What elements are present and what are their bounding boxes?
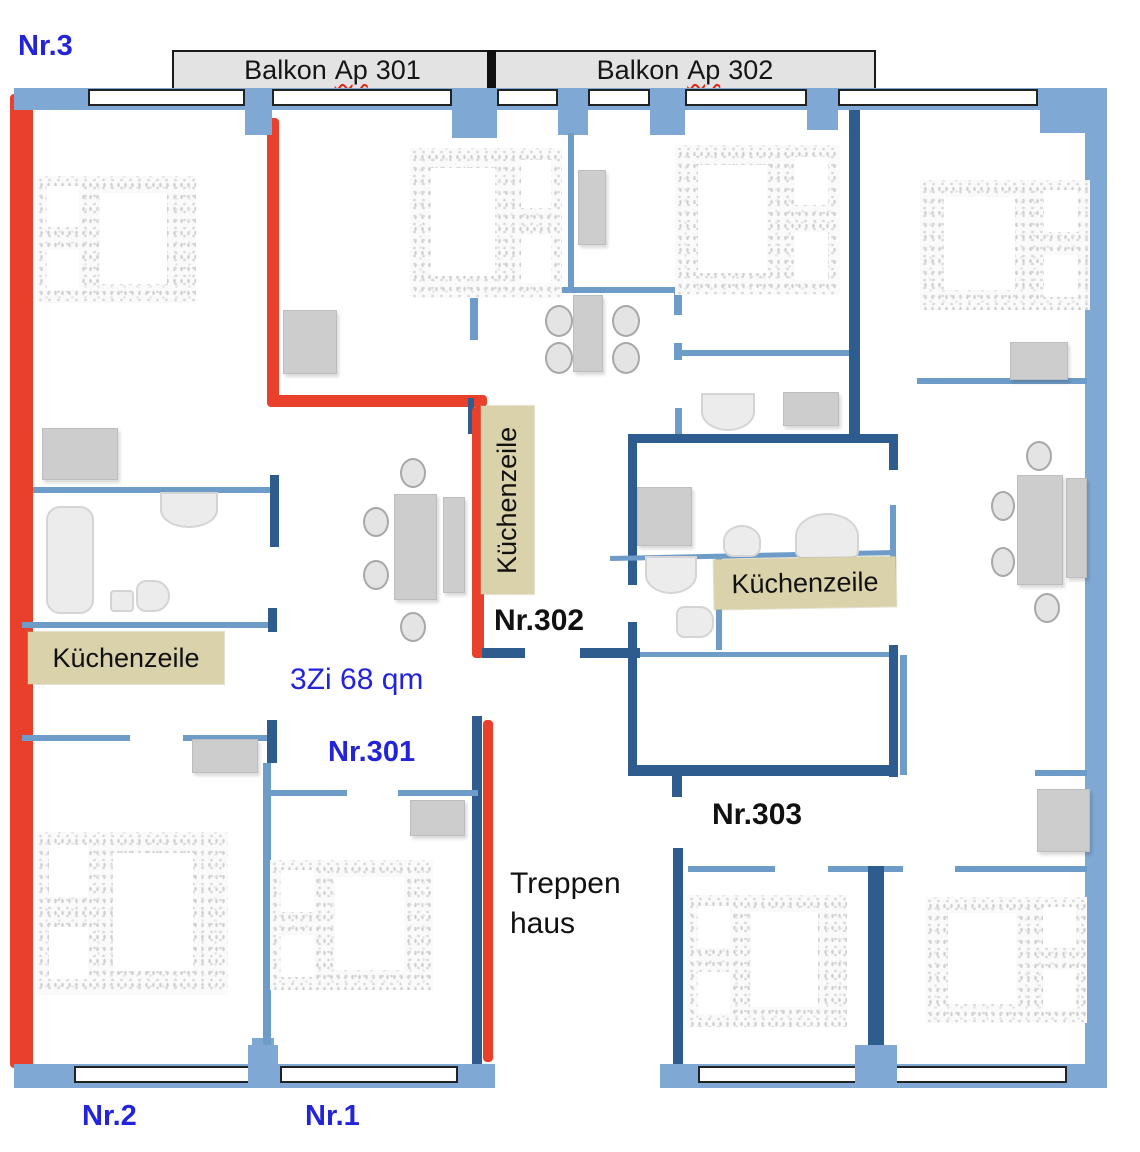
balcony-302-prefix: Balkon <box>597 55 680 86</box>
wall-cap <box>267 720 277 763</box>
toilet <box>645 556 697 594</box>
nr301-wall <box>398 790 478 796</box>
bed <box>920 180 1090 310</box>
shower <box>637 487 692 546</box>
bed <box>36 176 196 303</box>
kitchen-label-vertical: Küchenzeile <box>481 406 534 594</box>
pillar <box>245 88 272 135</box>
room-divider-wall <box>568 133 574 287</box>
pillar <box>452 88 497 138</box>
apartment-label-nr303: Nr.303 <box>712 798 802 832</box>
stair-wall-navy <box>472 716 482 1088</box>
sink <box>723 525 761 557</box>
staircase-label-line2: haus <box>510 904 621 944</box>
balcony-301-prefix: Balkon <box>244 55 327 86</box>
chair <box>400 458 426 488</box>
wall-cap <box>270 475 279 547</box>
dining-table <box>1017 475 1063 585</box>
dining-table <box>573 295 603 372</box>
303-bath-wall-right <box>889 434 898 470</box>
303-hall-wall-top <box>482 648 525 658</box>
room-wall <box>22 735 130 741</box>
red-wall-left <box>10 94 33 1068</box>
red-wall-302-vertical <box>267 118 279 402</box>
window <box>838 89 1038 106</box>
staircase-label: Treppen haus <box>510 864 621 944</box>
chair <box>400 612 426 642</box>
303-bath-wall-top <box>628 434 898 443</box>
pillar <box>558 88 588 135</box>
bathroom-wall <box>33 487 277 493</box>
sideboard <box>192 739 258 773</box>
sink <box>160 492 218 528</box>
toilet <box>701 393 755 431</box>
window <box>88 89 245 106</box>
chair <box>612 342 640 374</box>
apartment-label-nr302: Nr.302 <box>494 604 584 638</box>
sink <box>795 513 859 559</box>
toilet <box>110 590 134 612</box>
cabinet <box>1010 342 1068 380</box>
floor-plan: Balkon Ap 301 Balkon Ap 302 <box>0 0 1140 1152</box>
window <box>497 89 558 106</box>
toilet <box>136 580 170 612</box>
cabinet <box>1037 789 1090 852</box>
nr301-wall <box>267 790 347 796</box>
balcony-301-word: Ap <box>335 55 368 86</box>
cabinet <box>783 392 839 426</box>
hall-wall <box>678 350 858 356</box>
pillar <box>855 1045 897 1088</box>
apartment-label-nr301: Nr.301 <box>328 736 415 769</box>
kitchen-label-right: Küchenzeile <box>714 556 897 609</box>
cabinet <box>42 428 118 480</box>
chair <box>363 507 389 537</box>
toilet <box>676 606 714 638</box>
bed <box>410 148 562 298</box>
window <box>272 89 452 106</box>
chair <box>1034 593 1060 623</box>
bed <box>36 832 228 995</box>
balcony-divider <box>487 50 496 90</box>
bed <box>925 897 1087 1023</box>
staircase-label-line1: Treppen <box>510 864 621 904</box>
303-hall-wall-left <box>628 622 637 775</box>
dining-table <box>394 494 437 600</box>
pillar <box>807 88 838 130</box>
balcony-302-word: Ap <box>687 55 720 86</box>
window <box>588 89 650 106</box>
apartment-label-nr2: Nr.2 <box>82 1100 137 1133</box>
kitchen-label-left: Küchenzeile <box>28 632 224 684</box>
chair <box>612 305 640 337</box>
bed <box>675 145 840 295</box>
room-divider-wall-navy <box>849 110 860 443</box>
bed <box>270 860 433 990</box>
stair-wall-red <box>483 720 493 1062</box>
chair <box>545 342 573 374</box>
bathtub <box>46 506 94 614</box>
window <box>74 1066 250 1083</box>
chair <box>991 491 1015 521</box>
closet-wall <box>1035 770 1087 776</box>
window <box>698 1066 872 1083</box>
303-hall-wall-thin <box>640 652 889 657</box>
303-bedroom-divider <box>868 866 884 1045</box>
window <box>895 1066 1067 1083</box>
cabinet <box>410 800 465 836</box>
kitchen-wall <box>22 622 273 628</box>
chair <box>545 305 573 337</box>
sideboard <box>1066 478 1087 578</box>
pillar <box>248 1045 278 1088</box>
bed <box>687 895 847 1027</box>
wall-stub <box>675 408 682 434</box>
red-wall-302-horizontal <box>267 395 487 407</box>
303-bedroom-wall <box>955 866 1087 872</box>
apartment-label-nr3: Nr.3 <box>18 30 73 63</box>
wall-cap <box>268 608 277 632</box>
303-bedroom-wall <box>828 866 903 872</box>
window <box>685 89 807 106</box>
window <box>280 1066 458 1083</box>
sideboard <box>443 497 465 593</box>
303-hall-wall-bottom <box>628 765 898 776</box>
pillar <box>650 88 685 135</box>
chair <box>991 547 1015 577</box>
wall-stub <box>672 776 682 797</box>
balcony-301-number: 301 <box>376 55 421 86</box>
wardrobe <box>578 170 606 245</box>
303-hall-wall-right <box>889 645 898 777</box>
balcony-302-number: 302 <box>728 55 773 86</box>
hall-wall-thin <box>900 655 907 775</box>
balcony-label-301: Balkon Ap 301 <box>185 54 480 86</box>
area-label: 3Zi 68 qm <box>290 663 423 697</box>
chair <box>1026 441 1052 471</box>
wardrobe <box>283 310 337 374</box>
303-bath-wall-left <box>628 443 637 585</box>
apartment-label-nr1: Nr.1 <box>305 1100 360 1133</box>
303-bedroom-wall-left <box>673 848 683 1064</box>
303-bedroom-wall <box>688 866 775 872</box>
chair <box>363 560 389 590</box>
balcony-label-302: Balkon Ap 302 <box>500 54 870 86</box>
